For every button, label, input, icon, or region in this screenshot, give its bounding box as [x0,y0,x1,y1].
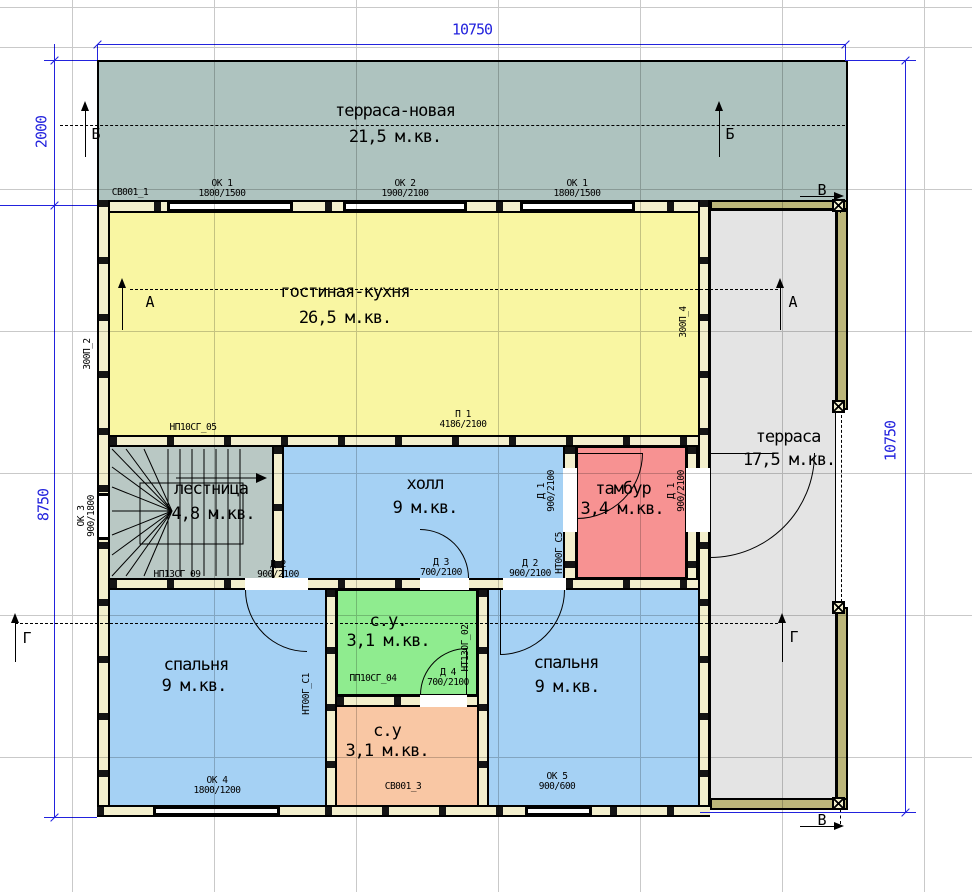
dim-ext [845,44,846,60]
section-marker-b-left [85,110,86,157]
section-letter-b-right: Б [725,125,734,143]
panel-z00p-2: З00П_2 [83,338,93,369]
terrace-wall-right-lower [836,607,848,808]
panel-nt00g-s5: НТ00Г_С5 [555,532,565,574]
panel-z00p-4: З00П_4 [679,306,689,337]
arrow-up-icon [776,278,784,288]
section-marker-a-left [122,287,123,330]
door-gap-bedroom-right [503,578,566,590]
floor-plan: 10750 2000 8750 10750 Б Б А А Г Г В В те… [0,0,972,892]
room-label-terrace-new: терраса-новая [335,102,455,120]
panel-np13sg-09: НП13СГ_09 [154,570,201,580]
tag-d2-hall: Д 2 900/2100 [509,559,551,579]
room-area-terrace-new: 21,5 м.кв. [349,128,441,146]
room-area-bedroom-left: 9 м.кв. [162,677,227,695]
arrow-up-icon [715,101,723,111]
terrace-wall-bottom [710,798,848,810]
window-ok1-right [520,202,635,211]
section-line-a [130,289,778,290]
room-area-bedroom-right: 9 м.кв. [535,678,600,696]
window-ok3 [97,493,110,540]
window-ok2 [343,202,467,211]
wall-living-south [110,435,698,447]
room-living [110,213,698,435]
tag-d3-hall: Д 3 700/2100 [420,558,462,578]
post-icon [832,601,845,614]
terrace-open-edge [841,410,842,607]
arrow-up-icon [11,613,19,623]
room-label-wc-top: с.у. [370,612,407,630]
tag-ok1-left: ОК 1 1800/1500 [199,179,246,199]
post-icon [832,199,845,212]
door-gap-wc-top [420,578,469,590]
tag-ok3: ОК 3 900/1800 [77,495,97,537]
tag-ok2: ОК 2 1900/2100 [382,179,429,199]
room-area-living: 26,5 м.кв. [299,309,391,327]
tag-ok4: ОК 4 1800/1200 [194,776,241,796]
arrow-up-icon [118,278,126,288]
arrow-right-icon [834,822,844,830]
section-letter-g-right: Г [789,628,798,646]
room-label-bedroom-right: спальня [534,654,599,672]
tag-p1: П 1 4186/2100 [440,410,487,430]
section-marker-g-right [782,622,783,662]
dim-left-upper-value: 2000 [35,116,50,148]
dim-line-top [97,44,845,45]
tag-d1-right: Д 1 900/2100 [667,470,687,512]
section-letter-b-left: Б [91,125,100,143]
tag-sv001-3: СВ001_3 [385,782,422,792]
arrow-up-icon [81,101,89,111]
panel-nt00g-s1: НТ00Г_С1 [302,673,312,715]
room-label-wc-bottom: с.у [373,722,401,740]
tag-d2-stairs: Д 2 900/2100 [257,560,299,580]
panel-nt13og-02: НТ13ОГ_02 [461,625,471,672]
dim-ext [0,205,97,206]
panel-pp10sg-04: ПП10СГ_04 [350,674,397,684]
dim-line-left [54,44,55,817]
window-ok5 [525,807,592,815]
arrow-up-icon [778,613,786,623]
window-ok4 [153,807,280,815]
tag-d1-left: Д 1 900/2100 [537,470,557,512]
dim-top-value: 10750 [452,23,492,38]
dim-right-value: 10750 [884,421,899,461]
section-marker-g-left [15,622,16,662]
post-icon [832,400,845,413]
panel-np10sg-05: НП10СГ_05 [170,423,217,433]
room-label-living: гостиная-кухня [280,283,409,301]
terrace-wall-top [710,200,848,210]
room-label-terrace: терраса [756,428,821,446]
dim-line-right [905,60,906,812]
tag-ok5: ОК 5 900/600 [539,772,576,792]
door-gap-tambour-left [563,468,577,532]
dim-left-lower-value: 8750 [37,489,52,521]
door-gap-tambour-right [686,468,710,532]
room-area-wc-top: 3,1 м.кв. [346,632,429,650]
room-area-tambour: 3,4 м.кв. [580,500,663,518]
room-label-stairs: лестница [174,480,248,498]
section-letter-a-right: А [788,293,797,311]
section-letter-v-bottom: В [817,811,826,829]
section-letter-g-left: Г [22,629,31,647]
tag-sv001-1: СВ001_1 [112,188,149,198]
room-area-wc-bottom: 3,1 м.кв. [345,742,428,760]
window-ok1-left [167,202,293,211]
dim-ext [97,44,98,60]
section-marker-b-right [719,110,720,157]
section-letter-v-top: В [817,181,826,199]
door-gap-wc-split [420,695,467,707]
post-icon [832,797,845,810]
section-letter-a-left: А [145,293,154,311]
room-label-tambour: тамбур [595,480,650,498]
room-area-terrace: 17,5 м.кв. [743,451,835,469]
room-area-hall: 9 м.кв. [393,499,458,517]
terrace-wall-right-upper [836,210,848,410]
room-area-stairs: 4,8 м.кв. [171,505,254,523]
tag-ok1-right: ОК 1 1800/1500 [554,179,601,199]
room-label-bedroom-left: спальня [164,656,229,674]
room-label-hall: холл [407,475,444,493]
arrow-right-icon [834,192,844,200]
dim-ext [700,812,916,813]
section-marker-a-right [780,287,781,330]
